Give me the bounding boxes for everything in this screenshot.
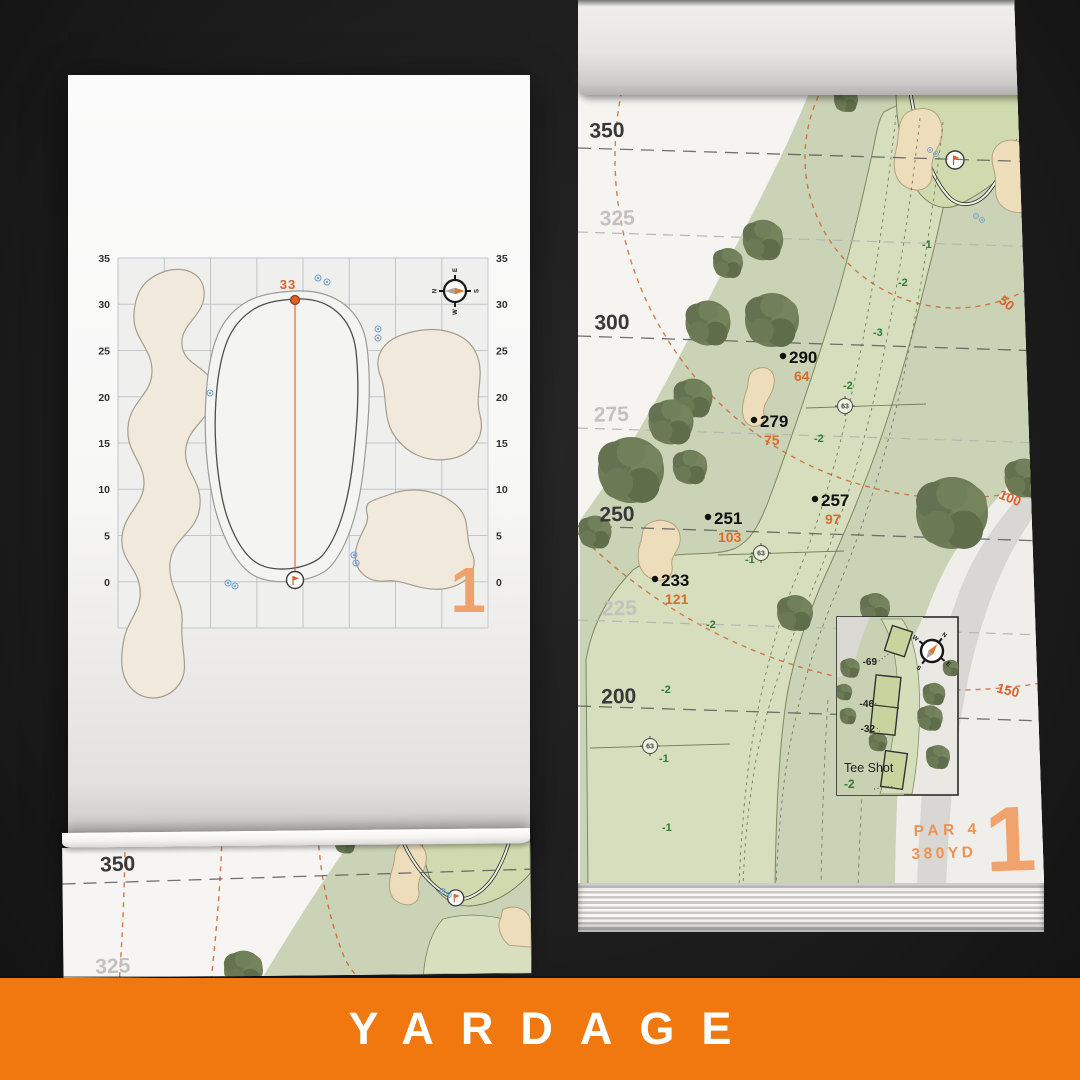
axis-tick: 20 <box>98 392 110 404</box>
green-detail-page: 33 35 30 <box>68 75 530 844</box>
tee-marker-label: -69 <box>863 657 878 668</box>
axis-tick: 35 <box>98 253 110 265</box>
tee-marker-label: -32 <box>861 724 876 735</box>
elevation-label: -2 <box>706 619 716 631</box>
tee-inset-title: Tee Shot <box>844 761 894 775</box>
elevation-label: -2 <box>843 380 853 392</box>
yardage-label: 380YD <box>911 844 976 863</box>
svg-text:97: 97 <box>825 511 841 527</box>
compass-s: S <box>475 289 481 293</box>
axis-right: 35 30 25 20 15 10 5 0 <box>496 253 508 589</box>
distance-band-label: 250 <box>599 503 635 527</box>
elevation-label: -2 <box>661 684 671 696</box>
page-fold <box>578 0 1044 95</box>
yardage-book-mockup: 33 35 30 <box>0 0 1080 1080</box>
pin-depth-dot <box>291 296 300 305</box>
distance-band-label: 300 <box>594 311 630 335</box>
elevation-label: -1 <box>659 753 669 765</box>
tee-shot-inset: -69 -46 -32 Tee Shot -2 <box>836 617 964 795</box>
tee-inset-elevation: -2 <box>844 777 855 791</box>
svg-text:290: 290 <box>789 348 817 367</box>
svg-text:63: 63 <box>841 404 849 411</box>
compass-w: W <box>453 309 459 315</box>
par-label: PAR 4 <box>913 821 981 840</box>
axis-tick: 0 <box>104 577 110 589</box>
axis-tick: 25 <box>98 346 110 358</box>
compass-e: E <box>453 268 459 272</box>
next-page-booklet: 350 325 <box>62 828 531 978</box>
flag-marker-icon <box>287 572 304 589</box>
svg-text:103: 103 <box>718 529 742 545</box>
green-detail-map: 33 35 30 <box>68 75 530 844</box>
elevation-label: -1 <box>662 822 672 834</box>
svg-text:64: 64 <box>794 368 810 384</box>
hole-map-page: 63 63 63 <box>578 0 1044 932</box>
axis-left: 35 30 25 20 15 10 5 0 <box>98 253 110 589</box>
axis-tick: 15 <box>496 438 508 450</box>
svg-text:257: 257 <box>821 491 849 510</box>
flag-marker-icon <box>448 890 464 906</box>
axis-tick: 5 <box>104 531 110 543</box>
svg-text:63: 63 <box>646 744 654 751</box>
axis-tick: 15 <box>98 438 110 450</box>
svg-text:279: 279 <box>760 412 788 431</box>
pin-depth-label: 33 <box>280 277 296 292</box>
page-stack-edges <box>578 883 1044 932</box>
banner-title: YARDAGE <box>322 1003 759 1055</box>
axis-tick: 30 <box>98 299 110 311</box>
hole-number: 1 <box>450 554 486 626</box>
svg-text:63: 63 <box>757 551 765 558</box>
svg-text:233: 233 <box>661 571 689 590</box>
axis-tick: 0 <box>496 577 502 589</box>
distance-band-label: 325 <box>599 207 635 231</box>
banner: YARDAGE <box>0 978 1080 1080</box>
axis-tick: 5 <box>496 531 502 543</box>
next-page-map: 350 325 <box>62 843 531 978</box>
svg-text:251: 251 <box>714 509 742 528</box>
distance-band-label: 325 <box>95 954 131 978</box>
distance-band-label: 200 <box>601 685 637 709</box>
distance-band-label: 225 <box>602 597 638 621</box>
distance-band-label: 275 <box>594 403 630 427</box>
axis-tick: 30 <box>496 299 508 311</box>
elevation-label: -2 <box>898 277 908 289</box>
axis-tick: 25 <box>496 346 508 358</box>
compass-n: N <box>433 289 439 293</box>
axis-tick: 10 <box>98 484 110 496</box>
hole-number: 1 <box>983 788 1038 892</box>
elevation-label: -1 <box>922 239 932 251</box>
elevation-label: -1 <box>745 554 755 566</box>
distance-band-label: 350 <box>589 119 625 143</box>
svg-text:75: 75 <box>764 432 780 448</box>
distance-band-label: 350 <box>100 852 136 876</box>
axis-tick: 20 <box>496 392 508 404</box>
tee-marker-label: -46 <box>860 699 875 710</box>
hole-map: 63 63 63 <box>578 0 1044 932</box>
axis-tick: 35 <box>496 253 508 265</box>
elevation-label: -2 <box>814 433 824 445</box>
elevation-label: -3 <box>873 327 883 339</box>
svg-text:121: 121 <box>665 591 689 607</box>
axis-tick: 10 <box>496 484 508 496</box>
